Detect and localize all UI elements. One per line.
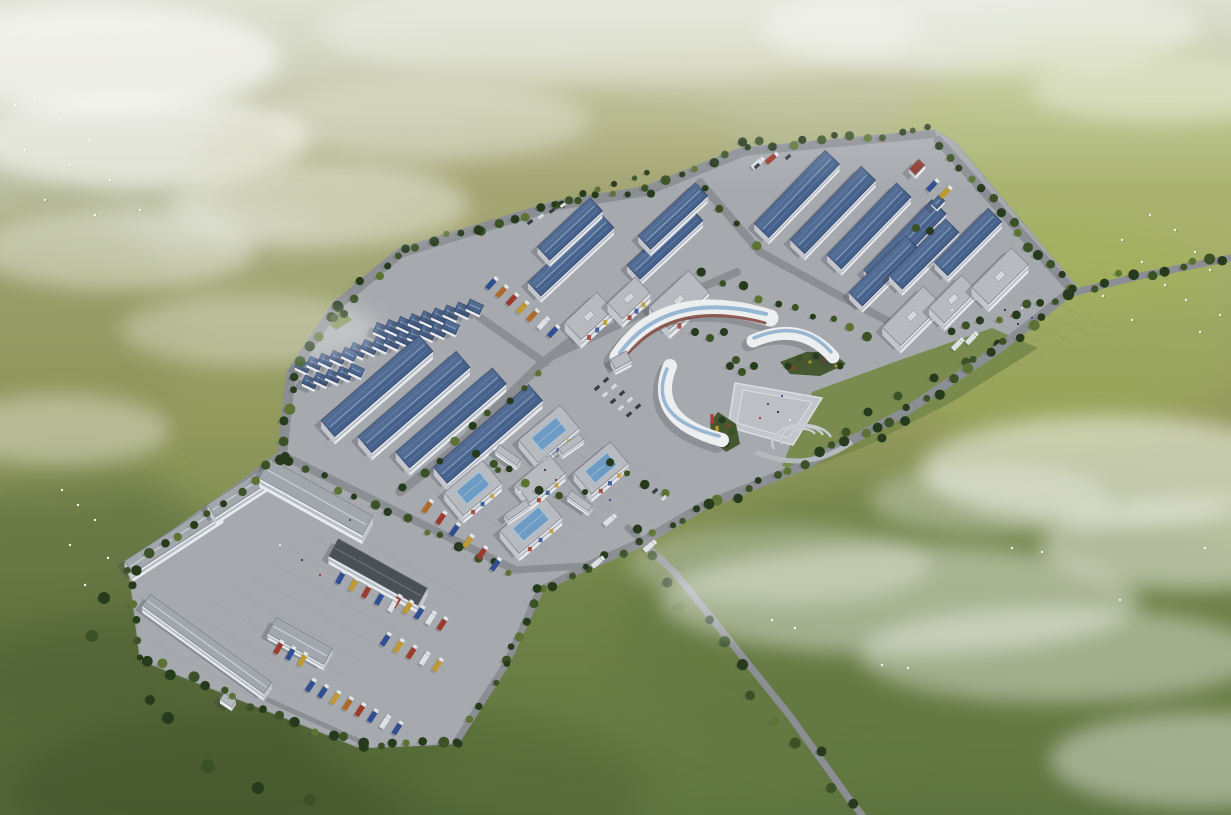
tree — [289, 717, 299, 727]
tree — [719, 417, 726, 424]
tree — [1038, 313, 1046, 321]
storefront-sign — [603, 320, 607, 325]
tree — [128, 581, 136, 589]
tree — [384, 262, 391, 269]
tree — [403, 514, 412, 523]
tree — [302, 465, 310, 473]
storefront-sign — [546, 491, 550, 495]
tree — [1059, 271, 1066, 278]
tree — [162, 712, 174, 724]
tree — [903, 404, 910, 411]
tree — [963, 363, 974, 374]
tree — [583, 564, 589, 570]
tree — [775, 301, 782, 308]
tree — [733, 494, 743, 504]
person-dot — [1017, 323, 1019, 325]
tree — [635, 538, 643, 546]
person-dot — [777, 411, 779, 413]
tree — [493, 680, 499, 686]
storefront-sign — [528, 547, 532, 551]
tree — [421, 468, 430, 477]
tree — [398, 483, 406, 491]
tree — [472, 450, 480, 458]
tree — [144, 548, 154, 558]
tree — [1023, 242, 1033, 252]
tree — [900, 416, 910, 426]
tree — [831, 316, 837, 322]
flower-patch — [808, 360, 811, 363]
tree — [797, 355, 804, 362]
person-dot — [1031, 317, 1033, 319]
tree — [505, 570, 511, 576]
tree — [469, 422, 477, 430]
tree — [719, 280, 726, 287]
tree — [157, 658, 167, 668]
storefront-sign — [471, 510, 475, 514]
tree — [350, 295, 359, 304]
tree — [697, 267, 706, 276]
tree — [633, 525, 642, 534]
tree — [279, 416, 288, 425]
tree — [484, 409, 491, 416]
tree — [437, 458, 444, 465]
tree — [926, 227, 934, 235]
tree — [1010, 218, 1019, 227]
tree — [551, 201, 557, 207]
cloud — [870, 465, 1110, 535]
tree — [1091, 285, 1098, 292]
sheep — [1121, 239, 1123, 241]
storefront-sign — [481, 502, 485, 506]
tree — [220, 500, 227, 507]
tree — [523, 618, 531, 626]
tree — [411, 244, 419, 252]
flower-patch — [792, 366, 795, 369]
tree — [1100, 279, 1109, 288]
tree — [535, 486, 544, 495]
storefront-sign — [587, 335, 591, 340]
sheep — [1209, 269, 1211, 271]
tree — [371, 500, 380, 509]
person-dot — [767, 403, 769, 405]
sheep — [1164, 284, 1166, 286]
tree — [739, 281, 748, 290]
flower-patch — [834, 364, 837, 367]
tree — [339, 732, 348, 741]
person-dot — [519, 491, 521, 493]
aerial-rendering-stage — [0, 0, 1231, 815]
tree — [284, 404, 295, 415]
storefront-sign — [549, 529, 553, 533]
tree — [304, 794, 316, 806]
cloud — [630, 525, 930, 605]
storefront-sign — [539, 538, 543, 542]
person-dot — [759, 417, 761, 419]
tree — [311, 729, 318, 736]
tree — [1180, 264, 1187, 271]
tree — [574, 197, 581, 204]
tree — [997, 208, 1006, 217]
sheep — [1185, 299, 1187, 301]
sheep — [61, 489, 63, 491]
person-dot — [301, 559, 303, 561]
person-dot — [1004, 309, 1006, 311]
tree — [935, 390, 945, 400]
tree — [989, 194, 998, 203]
storefront-sign — [537, 498, 541, 502]
tree — [290, 373, 298, 381]
tree — [229, 693, 236, 700]
tree — [474, 225, 484, 235]
tree — [1128, 269, 1139, 280]
tree — [746, 485, 753, 492]
tree — [521, 213, 530, 222]
tree — [1217, 256, 1227, 266]
tree — [720, 328, 728, 336]
tree — [530, 599, 539, 608]
tree — [521, 479, 530, 488]
tree — [817, 746, 827, 756]
tree — [475, 703, 482, 710]
tree — [745, 691, 755, 701]
tree — [679, 518, 685, 524]
tree — [878, 434, 887, 443]
tree — [165, 669, 176, 680]
tree — [814, 447, 824, 457]
tree — [259, 705, 267, 713]
tree — [704, 499, 715, 510]
tree — [203, 510, 210, 517]
tree — [145, 695, 155, 705]
tree — [792, 304, 799, 311]
tree — [161, 539, 170, 548]
tree — [732, 356, 740, 364]
tree — [884, 418, 894, 428]
tree — [606, 458, 614, 466]
tree — [801, 460, 810, 469]
tree — [174, 533, 182, 541]
storefront-sign — [641, 302, 645, 307]
tree — [620, 549, 628, 557]
tree — [1033, 250, 1043, 260]
sheep — [107, 557, 109, 559]
tree — [873, 423, 883, 433]
tree — [329, 730, 339, 740]
tree — [334, 487, 342, 495]
storefront-sign — [628, 315, 632, 320]
cloud — [120, 294, 380, 366]
tree — [923, 395, 930, 402]
tree — [457, 230, 464, 237]
tree — [845, 323, 854, 332]
tree — [987, 348, 996, 357]
tree — [1036, 299, 1044, 307]
tree — [962, 321, 970, 329]
tree — [429, 237, 439, 247]
tree — [376, 272, 384, 280]
tree — [1160, 267, 1170, 277]
tree — [504, 661, 510, 667]
tree — [438, 737, 449, 748]
tree — [839, 436, 849, 446]
tree — [378, 743, 385, 750]
tree — [706, 334, 714, 342]
tree — [784, 467, 792, 475]
tree — [755, 477, 762, 484]
tree — [388, 739, 397, 748]
tree — [1016, 334, 1025, 343]
tree — [261, 461, 270, 470]
tree — [582, 489, 588, 495]
person-dot — [951, 309, 953, 311]
storefront-sign — [490, 494, 494, 498]
tree — [402, 739, 409, 746]
tree — [508, 643, 515, 650]
tree — [548, 582, 558, 592]
tree — [98, 592, 110, 604]
person-dot — [997, 319, 999, 321]
storefront-sign — [595, 328, 599, 333]
person-dot — [349, 519, 351, 521]
tree — [221, 687, 228, 694]
tree — [625, 191, 631, 197]
tree — [1148, 271, 1157, 280]
storefront-sign — [635, 309, 639, 314]
tree — [142, 656, 153, 667]
tree — [466, 715, 474, 723]
tree — [443, 231, 449, 237]
tree — [137, 654, 143, 660]
tree — [1014, 229, 1022, 237]
tree — [771, 717, 779, 725]
tree — [862, 332, 872, 342]
tree — [279, 436, 289, 446]
tree — [848, 799, 858, 809]
tree — [190, 521, 198, 529]
tree — [133, 616, 141, 624]
tree — [495, 467, 501, 473]
tree — [1022, 300, 1031, 309]
top-haze — [0, 0, 1231, 190]
tree — [647, 190, 655, 198]
tree — [785, 363, 792, 370]
tree — [1052, 298, 1059, 305]
tree — [290, 386, 297, 393]
tree — [201, 759, 215, 773]
tree — [1189, 258, 1196, 265]
storefront-sign — [617, 473, 621, 477]
tree — [450, 437, 459, 446]
tree — [275, 711, 284, 720]
storefront-sign — [555, 483, 559, 487]
road — [515, 566, 585, 570]
tree — [610, 191, 616, 197]
tree — [351, 494, 357, 500]
tree — [124, 567, 131, 574]
tree — [754, 295, 762, 303]
person-dot — [789, 419, 791, 421]
scene-svg — [0, 0, 1231, 815]
tree — [359, 742, 369, 752]
tree — [521, 385, 527, 391]
tree — [424, 529, 430, 535]
person-dot — [279, 544, 281, 546]
tree — [976, 316, 984, 324]
tree — [930, 374, 939, 383]
tree — [506, 465, 513, 472]
tree — [729, 429, 736, 436]
sheep — [1174, 229, 1176, 231]
person-dot — [544, 469, 546, 471]
tree — [1115, 270, 1122, 277]
tree — [569, 573, 576, 580]
tree — [246, 703, 254, 711]
tree — [842, 428, 851, 437]
tree — [490, 460, 498, 468]
person-dot — [781, 395, 783, 397]
sheep — [1219, 314, 1221, 316]
tree — [535, 370, 541, 376]
tree — [738, 368, 746, 376]
flower-patch — [726, 424, 729, 427]
tree — [999, 338, 1006, 345]
tree — [238, 488, 246, 496]
tree — [395, 252, 402, 259]
tree — [511, 215, 520, 224]
tree — [864, 408, 873, 417]
tree — [129, 600, 137, 608]
person-dot — [555, 479, 557, 481]
sheep — [1131, 319, 1133, 321]
tree — [565, 196, 573, 204]
tree — [691, 328, 699, 336]
tree — [284, 456, 294, 466]
sheep — [1194, 251, 1196, 253]
tree — [734, 220, 740, 226]
tree — [752, 241, 761, 250]
tree — [131, 565, 141, 575]
sheep — [1141, 261, 1143, 263]
tree — [790, 738, 801, 749]
tree — [515, 632, 524, 641]
tree — [640, 480, 649, 489]
tree — [774, 471, 782, 479]
tree — [1012, 310, 1021, 319]
tree — [737, 659, 748, 670]
tree — [862, 429, 871, 438]
storefront-sign — [599, 489, 603, 493]
tree — [970, 356, 977, 363]
sheep — [84, 584, 86, 586]
person-dot — [1021, 307, 1023, 309]
tree — [536, 203, 545, 212]
tree — [826, 783, 836, 793]
tree — [555, 492, 563, 500]
tree — [321, 472, 327, 478]
tree — [810, 314, 816, 320]
tree — [1068, 285, 1077, 294]
tree — [134, 637, 141, 644]
tree — [418, 737, 427, 746]
tree — [750, 362, 758, 370]
sheep — [44, 199, 46, 201]
tree — [533, 584, 542, 593]
tree — [579, 190, 586, 197]
tree — [384, 508, 392, 516]
sheep — [77, 504, 79, 506]
tree — [252, 782, 264, 794]
person-dot — [1011, 315, 1013, 317]
tree — [86, 630, 98, 642]
tree — [670, 522, 676, 528]
banner-sculpture — [711, 414, 714, 424]
tree — [437, 532, 443, 538]
tree — [495, 219, 504, 228]
tree — [356, 277, 364, 285]
tree — [649, 529, 656, 536]
tree — [189, 671, 200, 682]
tree — [1029, 320, 1040, 331]
tree — [715, 205, 723, 213]
tree — [1204, 253, 1215, 264]
sheep — [1199, 331, 1201, 333]
storefront-sign — [608, 481, 612, 485]
tree — [693, 505, 700, 512]
tree — [251, 476, 260, 485]
tree — [949, 374, 958, 383]
person-dot — [319, 574, 321, 576]
tree — [912, 224, 920, 232]
tree — [624, 470, 630, 476]
sheep — [94, 519, 96, 521]
tree — [1046, 260, 1055, 269]
tree — [455, 740, 463, 748]
sheep — [1102, 295, 1104, 297]
sheep — [1149, 214, 1151, 216]
sheep — [69, 544, 71, 546]
tree — [948, 328, 956, 336]
tree — [200, 681, 210, 691]
sheep — [1011, 547, 1013, 549]
person-dot — [609, 499, 611, 501]
tree — [894, 392, 903, 401]
tree — [828, 441, 835, 448]
tree — [507, 397, 514, 404]
